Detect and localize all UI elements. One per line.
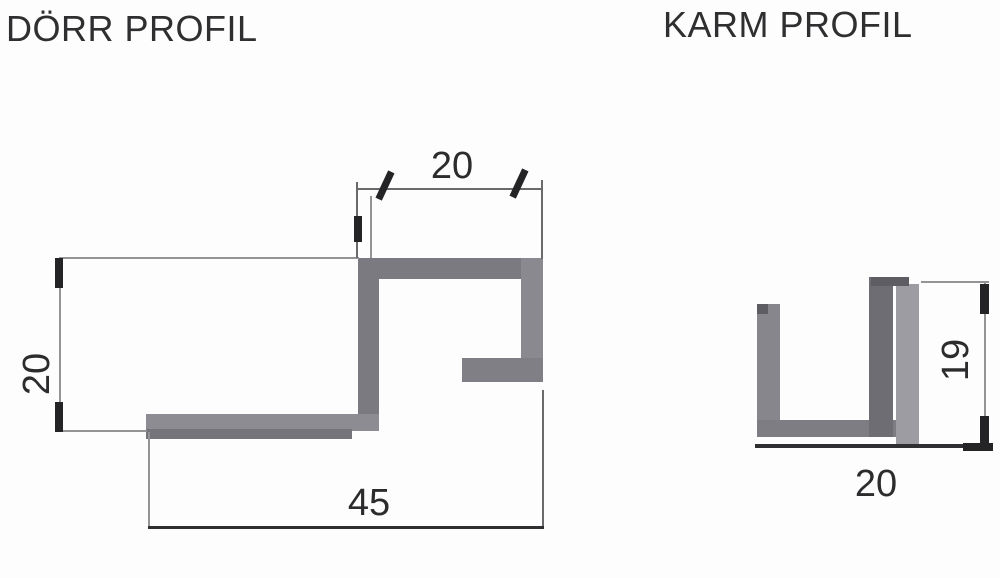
karm-right-fin: [896, 284, 919, 444]
karm-baseline: [755, 444, 991, 448]
door-web-bar: [358, 258, 379, 429]
profile-drawing-canvas: DÖRR PROFIL KARM PROFIL 20 20: [0, 0, 1000, 578]
door-bottom-dim-line: [148, 526, 544, 529]
karm-left-leg: [757, 304, 780, 436]
door-left-dim-label: 20: [17, 334, 57, 414]
door-top-dim-label: 20: [412, 146, 492, 186]
door-profile-title: DÖRR PROFIL: [6, 8, 258, 50]
door-top-flange: [358, 258, 543, 279]
karm-bottom-dim-label: 20: [836, 464, 916, 504]
door-bottom-dim-label: 45: [329, 483, 409, 523]
door-bottom-strip: [146, 429, 352, 439]
door-top-tick-left: [375, 170, 394, 200]
karm-tick-end: [963, 443, 993, 451]
karm-tick-bottom: [980, 416, 989, 446]
door-hook-bar: [462, 358, 543, 382]
karm-right-leg: [869, 277, 893, 437]
door-top-tick-right: [509, 168, 528, 198]
door-left-tick-top: [55, 258, 63, 288]
door-left-ext-bottom: [59, 430, 147, 432]
door-left-ext-top: [59, 257, 359, 259]
karm-left-leg-cap: [757, 304, 768, 314]
karm-height-dim-label: 19: [936, 320, 976, 400]
karm-profile-title: KARM PROFIL: [663, 4, 913, 46]
door-ext-dash: [354, 216, 362, 242]
door-top-ext-left-inner: [370, 196, 372, 258]
karm-ext-top: [921, 281, 989, 283]
karm-tick-top: [980, 284, 989, 314]
karm-top-cap: [871, 277, 909, 286]
door-top-ext-right: [541, 180, 543, 259]
door-bottom-ext-left: [148, 432, 150, 529]
door-bottom-ext-right: [542, 390, 544, 529]
